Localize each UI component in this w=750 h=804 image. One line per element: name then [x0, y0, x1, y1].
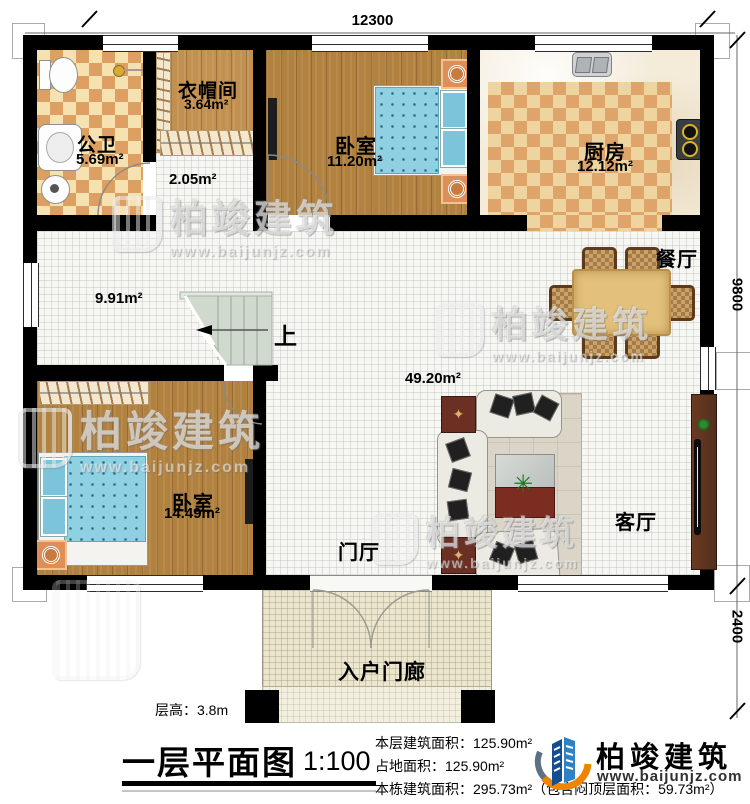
pilaster-bottom-right [714, 565, 750, 602]
room-label-foyer: 门厅 [338, 536, 380, 565]
title-underline-thin [122, 790, 376, 792]
wall-segment [23, 215, 156, 231]
bed-bottom-pillow [41, 458, 67, 497]
plan-title: 一层平面图 [122, 736, 297, 784]
cabinet-plant-icon [697, 419, 710, 430]
stairs-up-label: 上 [274, 317, 297, 351]
corridor-floor [156, 153, 253, 231]
room-area-kitchen: 12.12m² [577, 158, 633, 175]
floor-drain [113, 65, 125, 77]
kitchen-rug-opening [527, 215, 662, 231]
mop-basin-drain [50, 184, 59, 193]
washbasin-sink [46, 132, 74, 163]
porch-step [262, 686, 490, 723]
window [312, 35, 428, 52]
entry-door-threshold [310, 575, 432, 592]
kitchen-sink [572, 52, 612, 77]
floor-height-label: 层高：3.8m [155, 700, 228, 720]
room-label-porch: 入户门廊 [338, 656, 426, 686]
wall-segment [428, 35, 535, 50]
bed-top-mattress [375, 87, 439, 174]
dimension-right-lower: 2400 [729, 604, 746, 650]
stove [676, 119, 703, 160]
side-table [441, 396, 476, 433]
room-label-dining: 餐厅 [656, 243, 698, 272]
tv-cabinet [691, 394, 717, 570]
stat-land-area: 占地面积：125.90m² [375, 756, 504, 776]
window [700, 347, 716, 390]
room-area-bedroom-top: 11.20m² [327, 153, 382, 170]
window [103, 35, 178, 52]
bed-bottom-mattress [64, 456, 146, 542]
hallway-floor [37, 231, 266, 365]
plan-scale: 1:100 [303, 746, 371, 777]
sofa-pillow [447, 499, 470, 522]
title-underline [122, 781, 376, 786]
stat-floor-area: 本层建筑面积：125.90m² [375, 733, 532, 753]
wall-segment [467, 50, 480, 231]
room-area-bathroom: 5.69m² [76, 151, 124, 168]
wall-segment [23, 365, 224, 381]
window [23, 263, 39, 327]
room-area-hallway: 9.91m² [95, 290, 143, 307]
porch-pillar-left [245, 690, 279, 723]
wall-segment [253, 50, 266, 231]
room-area-bedroom-bottom: 14.49m² [164, 505, 220, 522]
dimension-right-upper: 9800 [729, 272, 746, 318]
bed-bottom-pillow [41, 497, 67, 536]
wall-segment [203, 575, 310, 590]
brand-logo-icon [532, 732, 594, 790]
wall-segment [330, 215, 467, 231]
wall-segment [143, 50, 156, 162]
wall-segment [253, 365, 266, 575]
wall-segment [662, 215, 714, 231]
bed-top-pillow [441, 91, 467, 129]
tv-living [694, 439, 701, 535]
porch-pillar-right [461, 690, 495, 723]
wall-segment [700, 35, 714, 347]
wall-segment [432, 575, 518, 590]
wall-segment [467, 215, 527, 231]
brand-website: www.baijunjz.com [597, 768, 742, 785]
plant-icon [513, 470, 533, 499]
watermark-logo-icon [52, 580, 140, 680]
dimension-top: 12300 [335, 12, 410, 29]
bed-top-pillow [441, 129, 467, 167]
wardrobe-rail-horizontal [160, 130, 255, 156]
kitchen-rug [488, 82, 672, 215]
window [518, 575, 668, 592]
room-label-living: 客厅 [615, 506, 657, 535]
tv-bedroom-top [268, 98, 277, 160]
toilet-bowl [49, 57, 78, 93]
side-table [441, 537, 476, 574]
wardrobe-rail-horizontal [39, 381, 149, 405]
window [535, 35, 652, 52]
floor-plan-page: 柏竣建筑 www.baijunjz.com 柏竣建筑 www.baijunjz.… [0, 0, 750, 804]
pilaster-right-mid [716, 352, 750, 390]
room-area-great-room: 49.20m² [405, 370, 461, 387]
room-area-corridor: 2.05m² [169, 171, 217, 188]
dining-table [572, 269, 671, 336]
wall-segment [178, 35, 312, 50]
wall-segment [253, 215, 268, 231]
nightstand [35, 540, 67, 570]
room-area-cloakroom: 3.64m² [184, 96, 228, 112]
